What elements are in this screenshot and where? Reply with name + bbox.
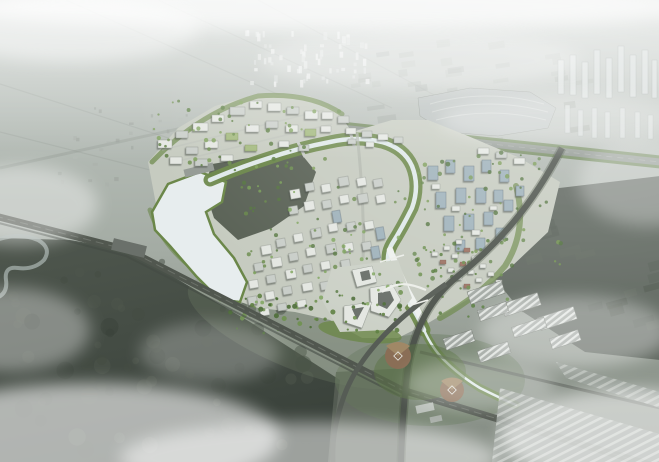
aerial-rendering [0,0,659,462]
masterplan-scene [0,0,659,462]
